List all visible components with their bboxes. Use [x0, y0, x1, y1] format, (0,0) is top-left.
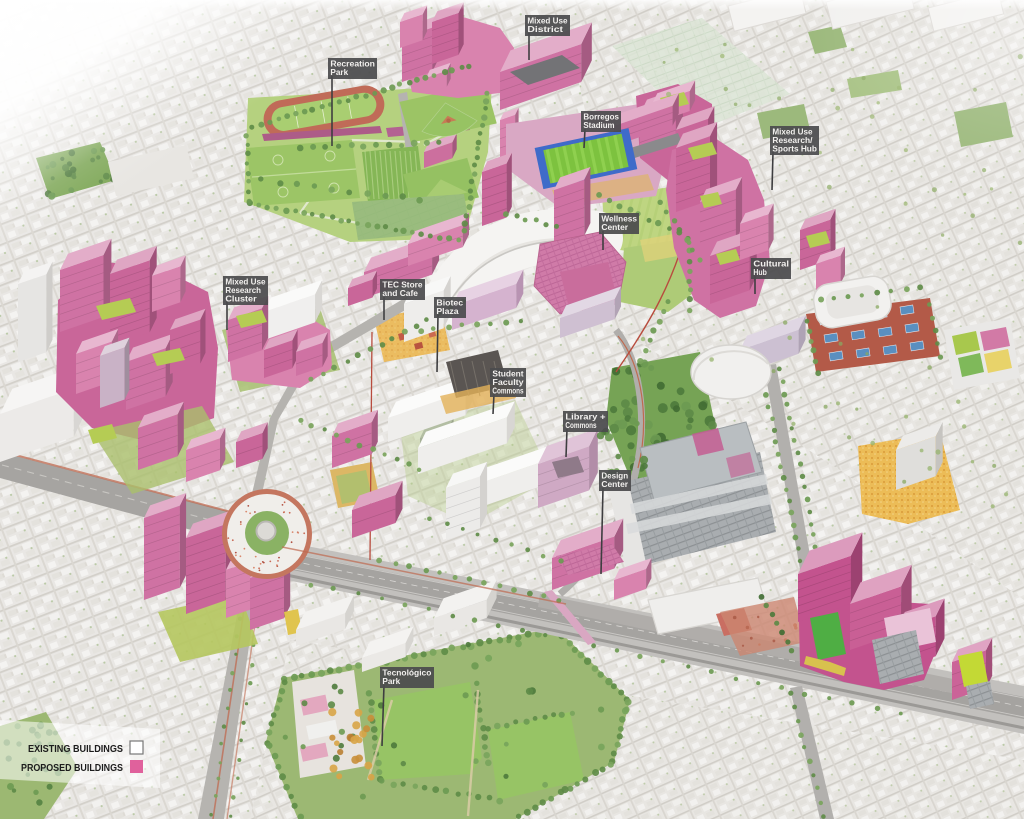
svg-text:Stadium: Stadium [583, 121, 614, 130]
svg-text:PROPOSED BUILDINGS: PROPOSED BUILDINGS [21, 763, 123, 774]
svg-text:EXISTING BUILDINGS: EXISTING BUILDINGS [28, 744, 123, 755]
svg-text:Plaza: Plaza [436, 307, 459, 316]
svg-text:Commons: Commons [565, 421, 597, 430]
svg-text:Cluster: Cluster [225, 295, 256, 304]
svg-text:District: District [527, 25, 563, 34]
svg-text:Park: Park [330, 68, 348, 77]
svg-text:Sports Hub: Sports Hub [772, 145, 817, 154]
svg-text:and Cafe: and Cafe [382, 289, 418, 298]
svg-text:Hub: Hub [753, 268, 767, 277]
svg-text:Commons: Commons [492, 387, 524, 396]
svg-text:Center: Center [601, 480, 628, 489]
svg-text:Center: Center [601, 223, 628, 232]
svg-text:Park: Park [382, 677, 400, 686]
